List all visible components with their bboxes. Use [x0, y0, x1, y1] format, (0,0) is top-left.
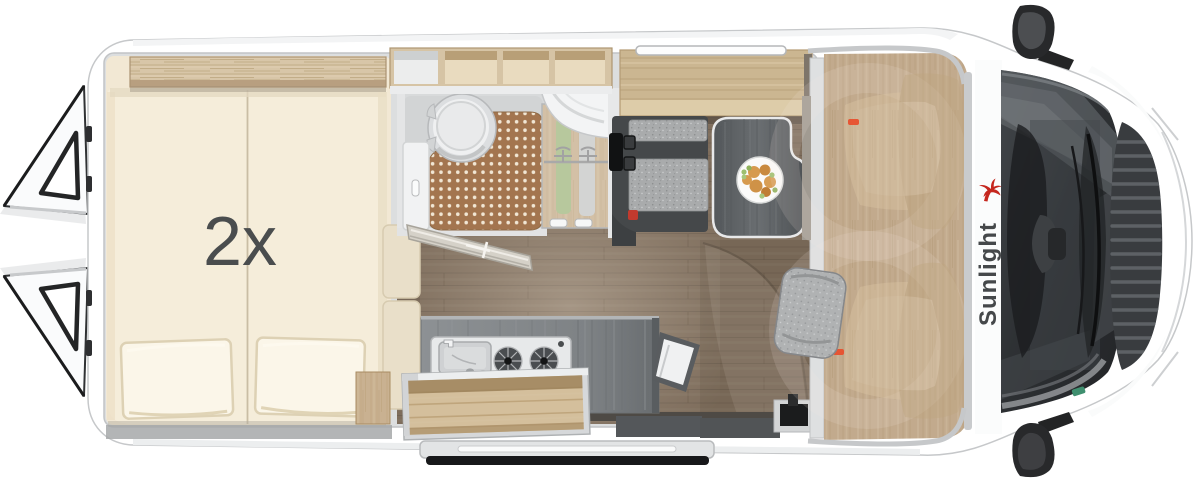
- svg-text:Sunlight: Sunlight: [975, 222, 1002, 326]
- svg-text:2x: 2x: [203, 202, 277, 280]
